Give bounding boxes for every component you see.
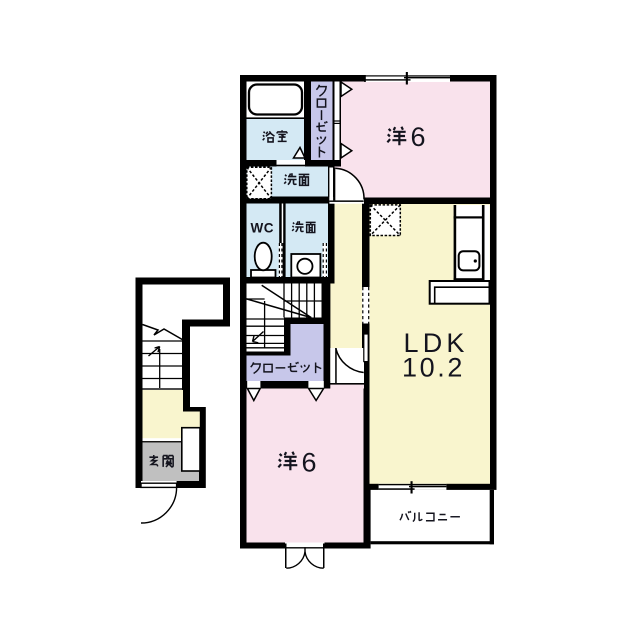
svg-text:WC: WC [251,221,275,236]
svg-text:10.2: 10.2 [402,353,465,383]
svg-text:6: 6 [302,448,317,478]
svg-text:6: 6 [411,122,426,152]
